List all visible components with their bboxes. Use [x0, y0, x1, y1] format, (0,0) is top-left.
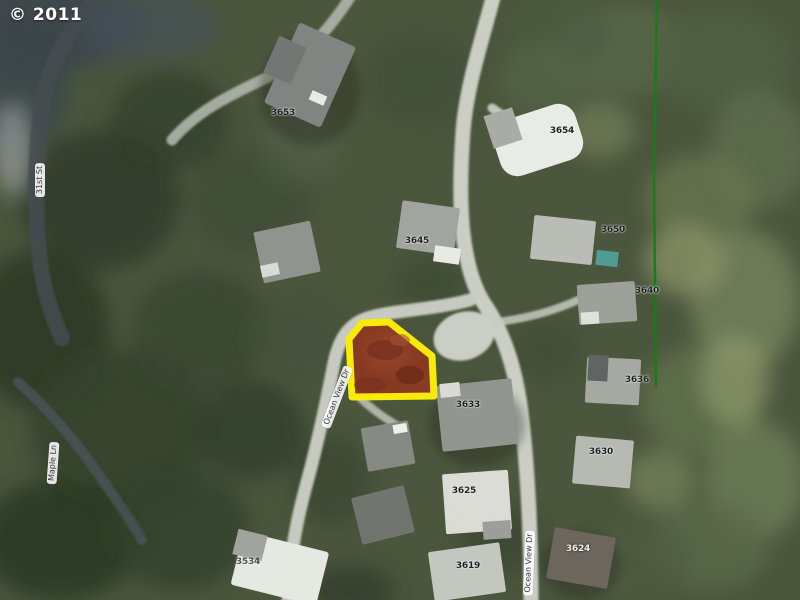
house-number-3625: 3625	[452, 486, 476, 496]
house-number-3645: 3645	[405, 236, 429, 246]
house-number-3653: 3653	[271, 108, 295, 118]
street-label-31st-st: 31st St	[35, 163, 45, 197]
house-number-3633: 3633	[456, 400, 480, 410]
house-number-3640: 3640	[635, 286, 659, 296]
aerial-parcel-map: © 2011 31st St Maple Ln Ocean View Dr Oc…	[0, 0, 800, 600]
house-number-3624: 3624	[566, 544, 590, 554]
grain-overlay	[0, 0, 800, 600]
copyright-watermark: © 2011	[9, 5, 82, 25]
house-number-3654: 3654	[550, 126, 574, 136]
house-number-3534: 3534	[236, 557, 260, 567]
aerial-photo	[0, 0, 800, 600]
house-number-3630: 3630	[589, 447, 613, 457]
house-number-3650: 3650	[601, 225, 625, 235]
house-number-3636: 3636	[625, 375, 649, 385]
house-number-3619: 3619	[456, 561, 480, 571]
